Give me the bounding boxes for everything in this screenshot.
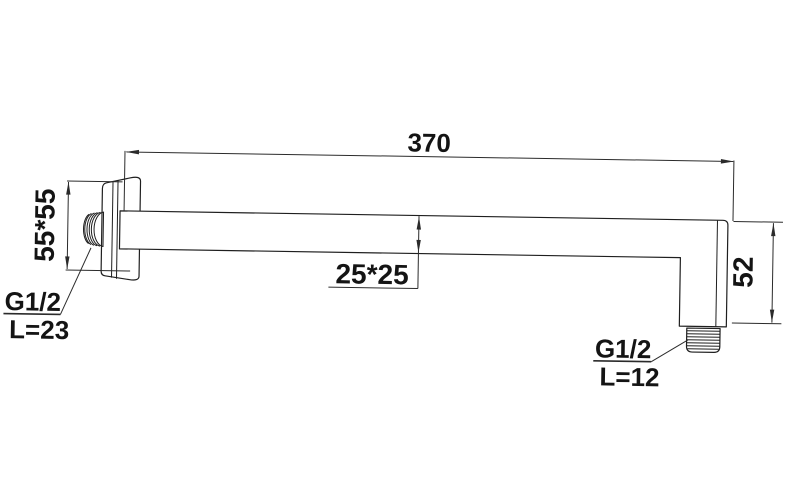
extension-line <box>733 221 782 222</box>
arrowhead <box>65 256 70 269</box>
arrowhead <box>126 150 139 155</box>
arm-tube <box>118 211 728 327</box>
dim-drop-52: 52 <box>727 221 783 323</box>
leader-line <box>60 247 91 314</box>
arrowhead <box>770 310 775 323</box>
extension-line <box>733 160 734 220</box>
thread-ridge-line <box>687 340 720 341</box>
technical-drawing: 370 55*55 25*25 52 <box>0 0 800 482</box>
dim-length-370: 370 <box>124 123 734 221</box>
thread-ridge-line <box>687 331 720 332</box>
arrowhead <box>66 182 71 195</box>
dimension-line <box>772 223 774 322</box>
dim-drop-label: 52 <box>727 256 758 288</box>
outlet-thread-label: G1/2 <box>595 333 652 364</box>
thread-ridge-line <box>687 334 720 335</box>
wall-thread-length-label: L=23 <box>9 314 69 345</box>
dim-flange-label: 55*55 <box>29 188 61 262</box>
thread-ridge-line <box>687 346 720 347</box>
thread-ridge-line <box>687 337 720 338</box>
arm <box>118 211 728 327</box>
arrowhead <box>771 223 776 236</box>
drawing-canvas: 370 55*55 25*25 52 <box>0 0 800 482</box>
arrowhead <box>721 159 734 164</box>
outlet-thread <box>686 328 720 352</box>
wall-thread-label: G1/2 <box>4 286 61 317</box>
outlet-thread-length-label: L=12 <box>599 361 659 392</box>
dimension-line <box>67 182 68 269</box>
leader-line <box>651 339 688 362</box>
outlet-thread-callout: G1/2 L=12 <box>593 333 688 392</box>
wall-thread <box>83 212 103 247</box>
shower-arm-drawing: 370 55*55 25*25 52 <box>2 121 784 394</box>
thread-ridge-line <box>687 343 720 344</box>
dim-tube-label: 25*25 <box>335 258 409 290</box>
dim-length-label: 370 <box>407 127 451 158</box>
extension-line <box>732 323 781 324</box>
